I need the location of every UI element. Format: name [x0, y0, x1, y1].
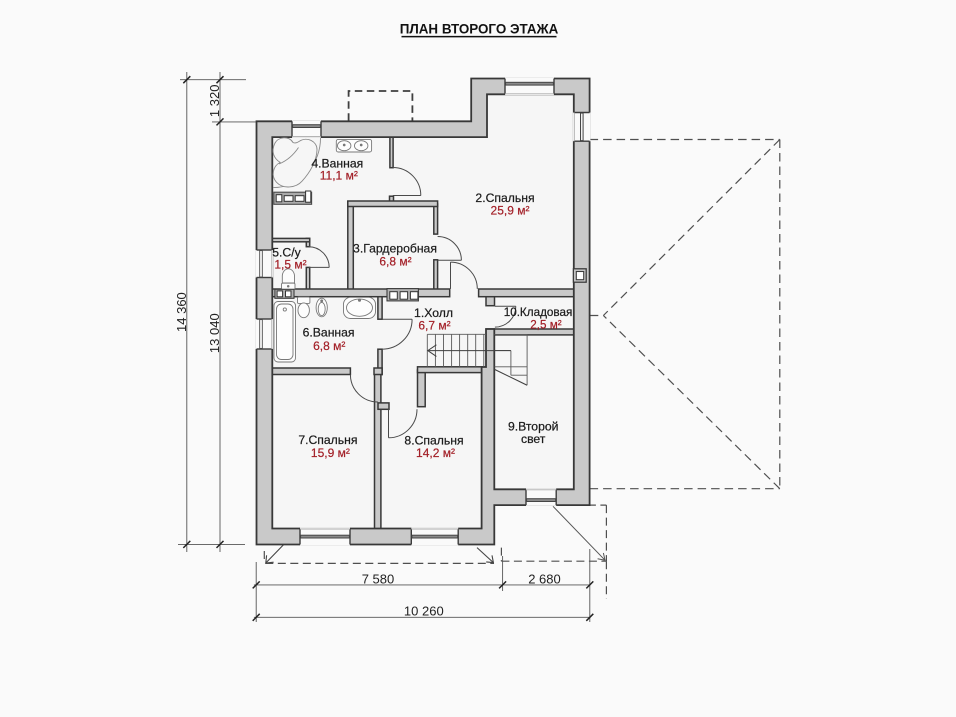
svg-text:10 260: 10 260: [404, 604, 444, 619]
svg-text:2,5 м²: 2,5 м²: [530, 319, 562, 332]
svg-text:14,2 м²: 14,2 м²: [416, 446, 455, 460]
svg-text:7 580: 7 580: [362, 571, 395, 586]
svg-text:свет: свет: [521, 432, 546, 446]
svg-text:7.Спальня: 7.Спальня: [298, 433, 357, 447]
svg-text:6,8 м²: 6,8 м²: [313, 339, 345, 353]
svg-text:15,9 м²: 15,9 м²: [311, 446, 350, 460]
svg-text:2 680: 2 680: [528, 571, 561, 586]
svg-text:10.Кладовая: 10.Кладовая: [504, 306, 573, 319]
svg-text:11,1 м²: 11,1 м²: [320, 169, 358, 183]
svg-text:1,5 м²: 1,5 м²: [274, 258, 306, 272]
svg-text:14 360: 14 360: [174, 292, 189, 332]
svg-text:6,7 м²: 6,7 м²: [418, 318, 450, 332]
svg-text:13 040: 13 040: [207, 313, 222, 353]
svg-text:ПЛАН ВТОРОГО ЭТАЖА: ПЛАН ВТОРОГО ЭТАЖА: [400, 22, 559, 37]
svg-text:1 320: 1 320: [207, 85, 222, 118]
svg-text:6,8 м²: 6,8 м²: [379, 254, 411, 268]
svg-text:25,9 м²: 25,9 м²: [491, 203, 530, 217]
svg-text:6.Ванная: 6.Ванная: [303, 326, 355, 340]
